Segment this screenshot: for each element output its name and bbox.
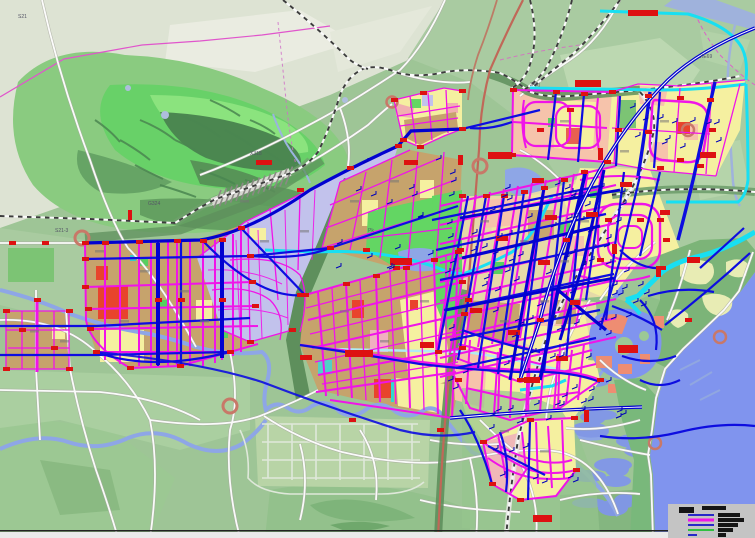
svg-text:X318: X318	[250, 151, 262, 157]
svg-text:Pk: Pk	[368, 228, 374, 234]
svg-text:Z4lrj: Z4lrj	[530, 82, 540, 88]
svg-text:S21: S21	[18, 14, 27, 20]
svg-text:G324: G324	[148, 201, 160, 207]
svg-text:S21-3: S21-3	[55, 228, 69, 234]
svg-text:XE69: XE69	[700, 54, 712, 60]
